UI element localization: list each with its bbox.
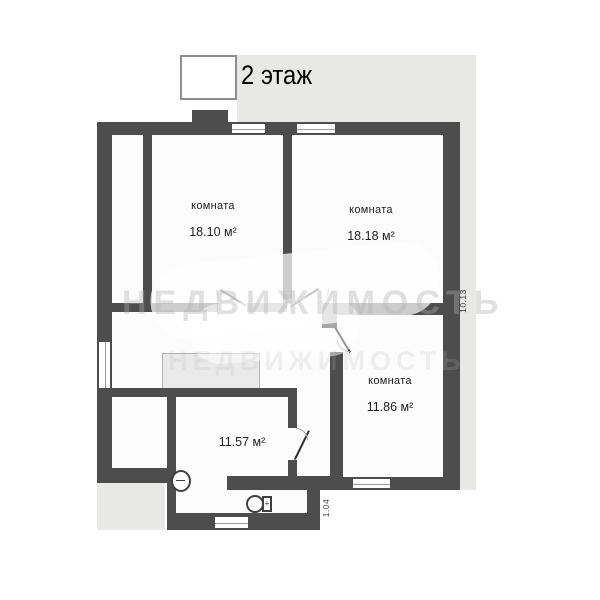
window-symbol: [353, 477, 390, 490]
chimney-bump: [192, 110, 228, 123]
wall: [167, 397, 176, 530]
room-name: комната: [321, 204, 421, 216]
room-label-1: комната 18.10 м²: [163, 200, 263, 239]
wall: [97, 468, 173, 483]
wall: [97, 388, 297, 397]
wall: [143, 135, 152, 303]
room-area: 18.10 м²: [163, 225, 263, 239]
background-panel-bottom-left: [97, 483, 165, 530]
room-area: 11.57 м²: [192, 435, 292, 449]
wall: [288, 397, 297, 428]
window-symbol: [297, 122, 335, 135]
floor-title: 2 этаж: [241, 60, 312, 91]
window-symbol: [232, 122, 265, 135]
watermark-text: НЕДВИЖИМОСТЬ: [122, 284, 505, 323]
floor-area-bathroom: [167, 397, 320, 530]
dimension-label-bottom: 1.04: [321, 483, 335, 533]
room-label-bathroom: 11.57 м²: [192, 435, 292, 449]
room-area: 11.86 м²: [340, 400, 440, 414]
title-box: [180, 55, 237, 100]
window-symbol: [215, 515, 248, 530]
floor-plan: 2 этаж + комната 18.10 м² ко: [0, 0, 600, 600]
room-label-2: комната 18.18 м²: [321, 204, 421, 243]
dimension-label-right: 10.13: [458, 276, 472, 326]
room-name: комната: [163, 200, 263, 212]
wall: [97, 122, 460, 135]
sink-icon: [171, 470, 191, 492]
watermark-text-secondary: НЕДВИЖИМОСТЬ: [168, 346, 466, 377]
toilet-tank-icon: +: [262, 496, 272, 512]
window-symbol: [97, 342, 112, 388]
room-label-3: комната 11.86 м²: [340, 375, 440, 414]
